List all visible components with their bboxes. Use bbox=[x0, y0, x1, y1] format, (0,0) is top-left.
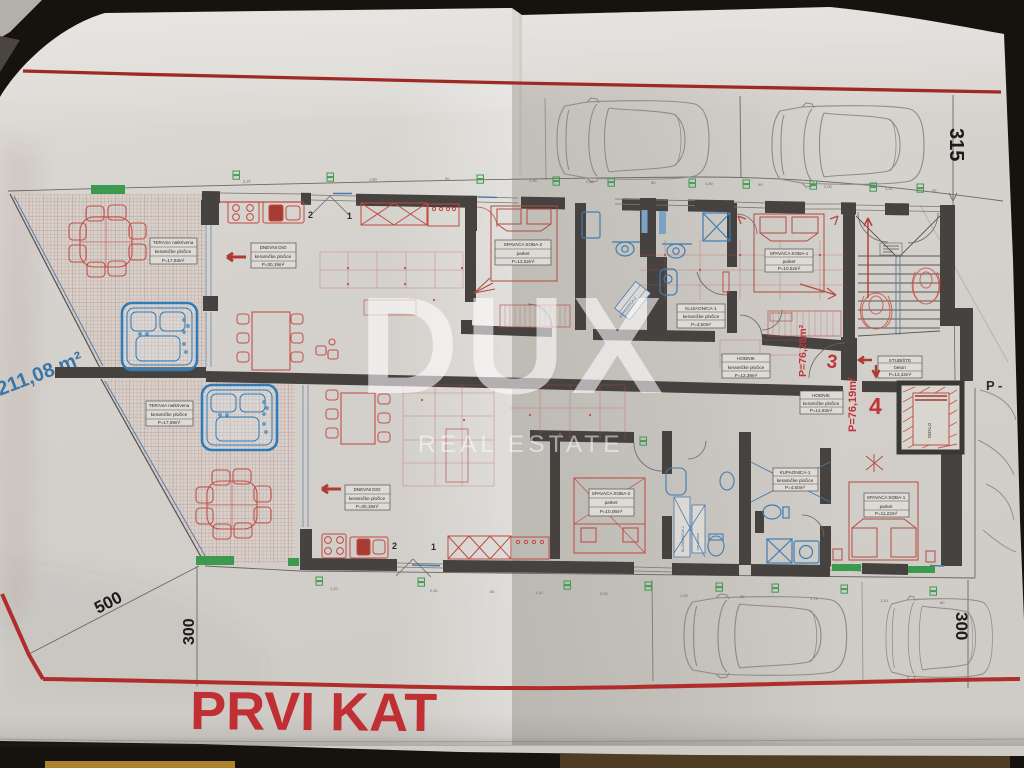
svg-text:SPAVAĆA SOBA-1: SPAVAĆA SOBA-1 bbox=[867, 494, 906, 500]
svg-text:P=17,59m²: P=17,59m² bbox=[158, 420, 181, 425]
svg-text:2: 2 bbox=[308, 210, 313, 220]
svg-text:keramičke pločice: keramičke pločice bbox=[155, 249, 192, 254]
svg-text:2,60: 2,60 bbox=[586, 179, 595, 184]
svg-text:REAL ESTATE: REAL ESTATE bbox=[418, 431, 624, 458]
svg-text:95: 95 bbox=[932, 188, 937, 193]
svg-text:STUBIŠTE: STUBIŠTE bbox=[889, 357, 911, 363]
svg-text:P=17,93m²: P=17,93m² bbox=[162, 258, 185, 263]
svg-text:TERASA natkrivena: TERASA natkrivena bbox=[153, 240, 194, 245]
svg-text:2,00: 2,00 bbox=[824, 184, 833, 189]
svg-text:TERASA natkrivena: TERASA natkrivena bbox=[149, 403, 190, 408]
svg-text:DNEVNI DIO: DNEVNI DIO bbox=[260, 245, 287, 250]
svg-text:parket: parket bbox=[605, 500, 618, 505]
svg-text:parket: parket bbox=[783, 259, 796, 264]
svg-text:4: 4 bbox=[869, 393, 882, 419]
svg-text:P=10,52m²: P=10,52m² bbox=[778, 266, 801, 271]
svg-text:P=10,06m²: P=10,06m² bbox=[600, 509, 623, 514]
svg-text:1,40: 1,40 bbox=[885, 186, 894, 191]
svg-text:1: 1 bbox=[347, 211, 352, 221]
svg-text:HODNIK: HODNIK bbox=[812, 393, 831, 398]
svg-text:85: 85 bbox=[490, 589, 495, 594]
svg-text:1,95: 1,95 bbox=[529, 178, 538, 183]
svg-text:1,80: 1,80 bbox=[705, 181, 714, 186]
svg-text:1,10: 1,10 bbox=[880, 598, 889, 603]
svg-text:80: 80 bbox=[940, 600, 945, 605]
svg-text:315: 315 bbox=[945, 128, 967, 161]
svg-text:P=4,50m²: P=4,50m² bbox=[691, 322, 712, 327]
svg-text:DNEVNI DIO: DNEVNI DIO bbox=[354, 487, 381, 492]
svg-text:P=76,19m²: P=76,19m² bbox=[847, 377, 859, 432]
svg-text:1: 1 bbox=[431, 542, 436, 552]
svg-text:1,10: 1,10 bbox=[535, 590, 544, 595]
svg-text:keramičke pločice: keramičke pločice bbox=[151, 412, 188, 417]
svg-text:DUX: DUX bbox=[359, 269, 670, 423]
svg-text:ker. pločice: ker. pločice bbox=[696, 533, 700, 550]
svg-text:KLIZAONICA-1: KLIZAONICA-1 bbox=[685, 306, 717, 311]
svg-text:P=30,19m²: P=30,19m² bbox=[356, 504, 379, 509]
svg-text:1,45: 1,45 bbox=[680, 593, 689, 598]
svg-text:P -: P - bbox=[986, 378, 1002, 393]
svg-text:HODNIK: HODNIK bbox=[737, 356, 756, 361]
svg-text:keramičke pločice: keramičke pločice bbox=[683, 314, 720, 319]
svg-text:keramičke pločice: keramičke pločice bbox=[255, 254, 292, 259]
svg-text:keramičke pločice: keramičke pločice bbox=[777, 478, 814, 483]
svg-text:keramičke pločice: keramičke pločice bbox=[349, 496, 386, 501]
svg-text:2,00: 2,00 bbox=[600, 591, 609, 596]
svg-text:300: 300 bbox=[952, 612, 971, 640]
svg-text:90: 90 bbox=[445, 176, 450, 181]
svg-text:KLIZAONICA-1: KLIZAONICA-1 bbox=[681, 526, 685, 552]
svg-text:P=4,50m²: P=4,50m² bbox=[785, 485, 806, 490]
svg-text:1,50: 1,50 bbox=[369, 177, 378, 182]
svg-text:beton: beton bbox=[894, 365, 906, 370]
svg-text:2,40: 2,40 bbox=[430, 588, 439, 593]
svg-text:keramičke pločice: keramičke pločice bbox=[728, 365, 765, 370]
svg-text:P=12,42m²: P=12,42m² bbox=[889, 372, 912, 377]
svg-text:P=76,28m²: P=76,28m² bbox=[797, 324, 809, 377]
svg-text:2,10: 2,10 bbox=[243, 179, 252, 184]
svg-text:SPAVAĆA SOBA-2: SPAVAĆA SOBA-2 bbox=[504, 241, 543, 247]
svg-text:parket: parket bbox=[880, 504, 893, 509]
svg-text:80: 80 bbox=[651, 180, 656, 185]
svg-text:parket: parket bbox=[517, 251, 530, 256]
svg-text:1,20: 1,20 bbox=[330, 586, 339, 591]
svg-text:P=30,19m²: P=30,19m² bbox=[262, 262, 285, 267]
svg-text:SPAVAĆA SOBA-1: SPAVAĆA SOBA-1 bbox=[770, 250, 809, 256]
svg-text:keramičke pločice: keramičke pločice bbox=[803, 401, 840, 406]
svg-text:P=12,52m²: P=12,52m² bbox=[512, 259, 535, 264]
svg-text:PRVI KAT: PRVI KAT bbox=[190, 681, 438, 743]
svg-text:90: 90 bbox=[758, 182, 763, 187]
svg-text:KUPAONICA-1: KUPAONICA-1 bbox=[780, 470, 811, 475]
svg-text:P=14,93m²: P=14,93m² bbox=[810, 408, 833, 413]
svg-text:DIZALO: DIZALO bbox=[927, 422, 932, 438]
svg-text:P=11,22m²: P=11,22m² bbox=[875, 511, 898, 516]
svg-text:1,75: 1,75 bbox=[810, 596, 819, 601]
svg-text:2: 2 bbox=[392, 541, 397, 551]
svg-text:90: 90 bbox=[740, 594, 745, 599]
svg-text:300: 300 bbox=[181, 618, 198, 645]
svg-text:P=12,39m²: P=12,39m² bbox=[735, 373, 758, 378]
svg-text:SPAVAĆA SOBA-2: SPAVAĆA SOBA-2 bbox=[592, 490, 631, 496]
